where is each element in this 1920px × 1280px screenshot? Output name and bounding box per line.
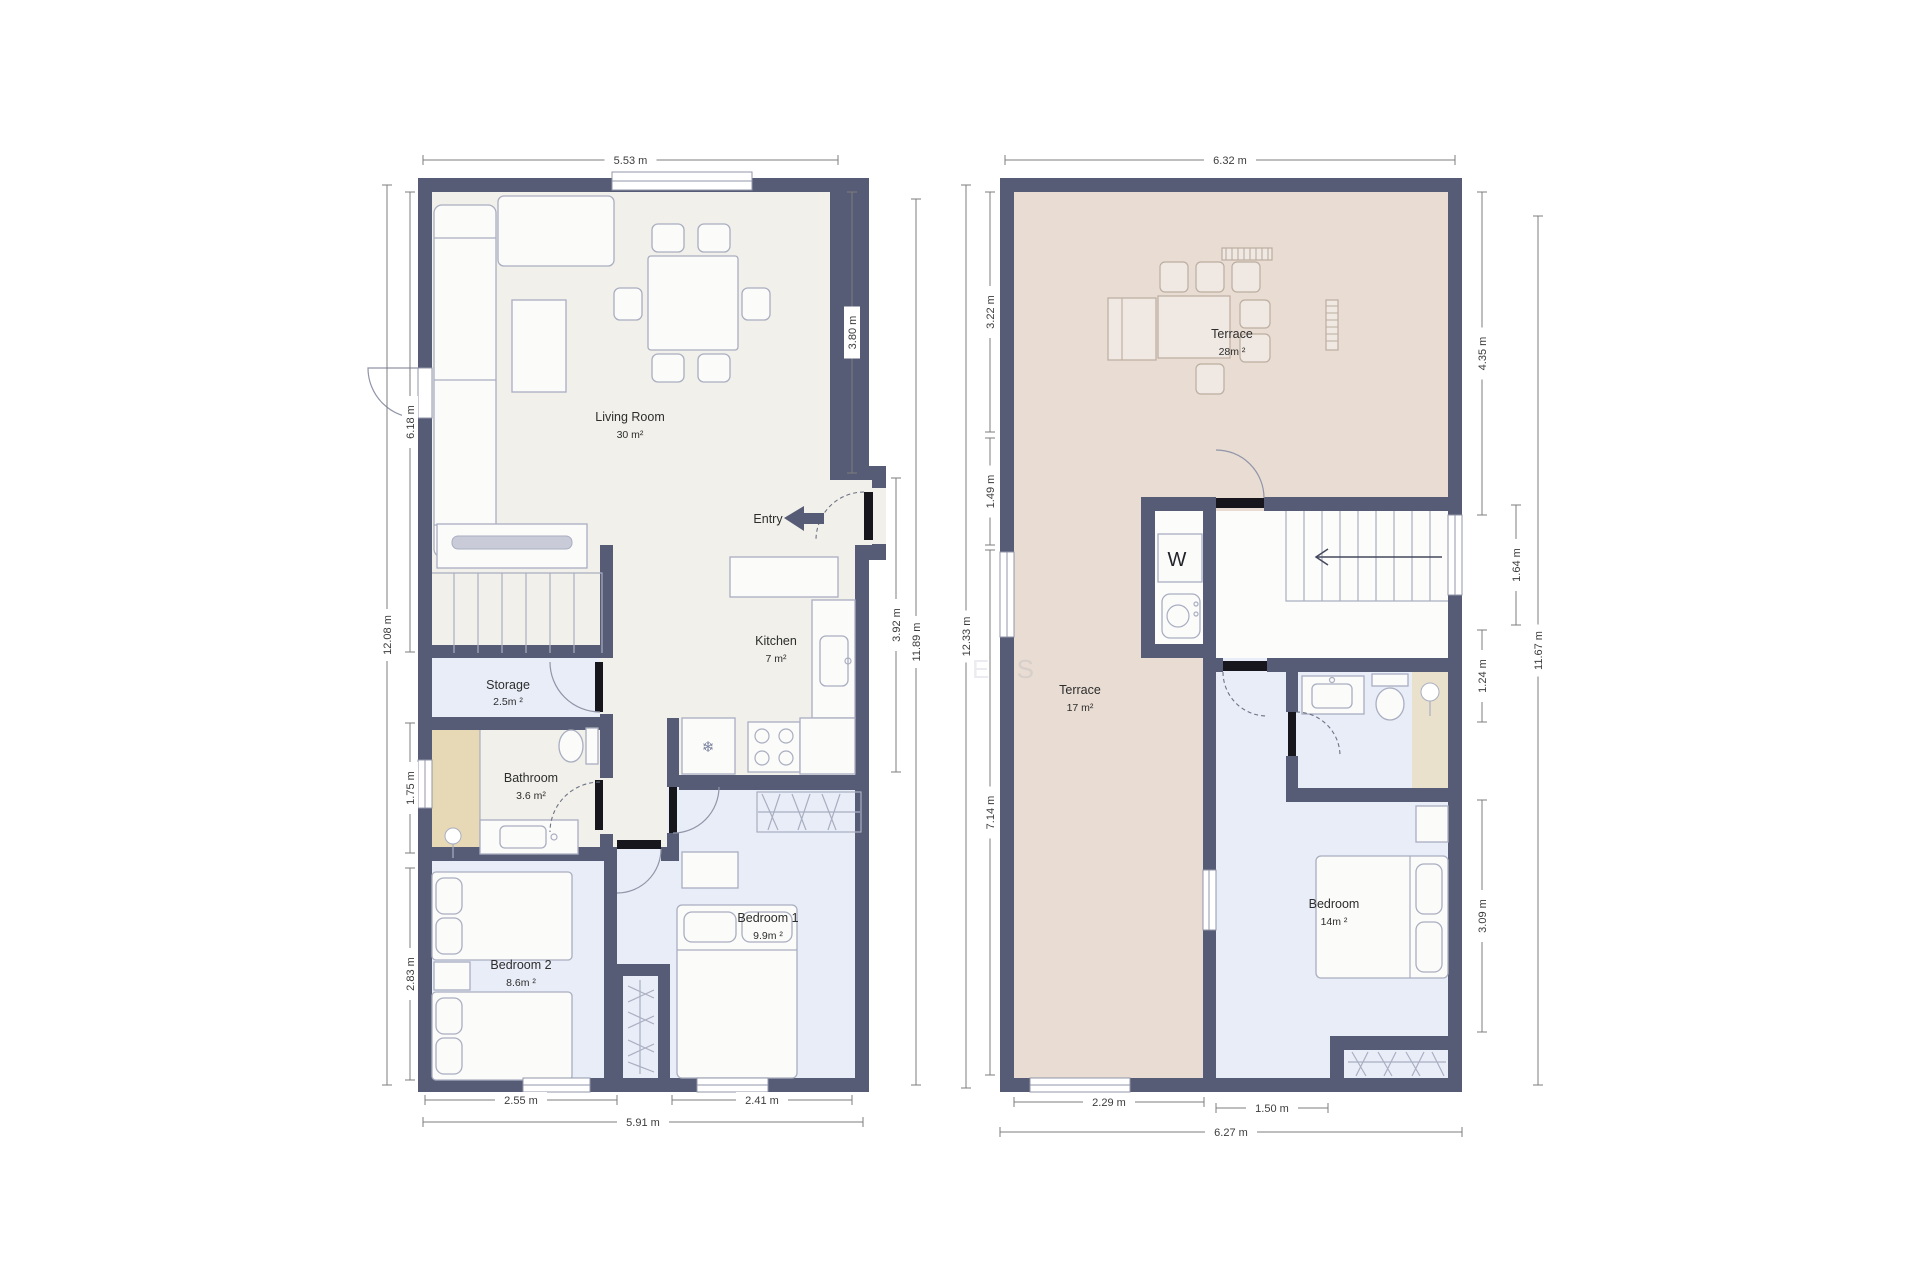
kitchen-bottom-wall	[679, 775, 869, 790]
dimension-label: 6.27 m	[1214, 1127, 1248, 1139]
pillow	[1416, 864, 1442, 914]
dimension: 3.92 m	[888, 478, 904, 772]
dimension-label: 11.89 m	[911, 623, 923, 662]
room-area-terrace-upper: 28m ²	[1219, 346, 1246, 358]
bedroom2-door-opening	[617, 847, 661, 861]
washer-closet-right-wall	[1203, 511, 1216, 658]
dining-chair	[742, 288, 770, 320]
dimension-label: 12.33 m	[961, 617, 973, 657]
living-side-door-opening	[418, 368, 432, 418]
dimension: 11.89 m	[908, 199, 924, 1085]
dimension-label: 2.83 m	[405, 957, 417, 991]
toilet-tank	[586, 728, 598, 764]
dimension: 1.75 m	[402, 723, 418, 853]
room-area-bedroom: 14m ²	[1321, 916, 1348, 928]
dimension: 2.29 m	[1014, 1094, 1204, 1110]
room-label-bedroom1: Bedroom 1	[737, 911, 798, 925]
dimension-label: 1.49 m	[985, 475, 997, 509]
lounge-chair	[1108, 298, 1156, 360]
toilet-bowl	[1376, 688, 1404, 720]
bedroom-left-wall	[1203, 658, 1216, 1078]
room-label-terrace-upper: Terrace	[1211, 327, 1253, 341]
dimension-label: 5.91 m	[626, 1117, 660, 1129]
shower-head-icon	[1421, 683, 1439, 701]
washer-closet-left-wall	[1141, 511, 1155, 658]
room-area-living: 30 m²	[617, 429, 644, 441]
room-label-kitchen: Kitchen	[755, 634, 797, 648]
planter	[1326, 300, 1338, 350]
vanity-sink	[1312, 684, 1352, 708]
dimension-label: 11.67 m	[1533, 631, 1545, 670]
pillow	[1416, 922, 1442, 972]
room-area-bathroom: 3.6 m²	[516, 790, 546, 802]
room-area-kitchen: 7 m²	[766, 653, 788, 665]
bathroom2-door-leaf	[1288, 712, 1296, 756]
dimension-label: 2.29 m	[1092, 1097, 1126, 1109]
washer-label: W	[1168, 549, 1187, 571]
dimension: 5.53 m	[423, 152, 838, 168]
dimension: 12.08 m	[379, 185, 395, 1085]
entry-door-leaf	[864, 492, 873, 540]
dresser	[682, 852, 738, 888]
closet2-top-wall	[1330, 1036, 1448, 1050]
dimension: 1.50 m	[1216, 1100, 1328, 1116]
room-label-living: Living Room	[595, 410, 664, 424]
terrace-lower-floor-b	[1014, 658, 1203, 1078]
kitchen-island	[730, 557, 838, 597]
nightstand	[434, 962, 470, 990]
water-heater	[1162, 594, 1200, 638]
terrace-door-leaf	[1216, 498, 1264, 508]
watermark-text: E S	[972, 654, 1044, 684]
hallway-floor	[613, 645, 667, 861]
dimension: 6.27 m	[1000, 1124, 1462, 1140]
dimension-label: 6.18 m	[405, 405, 417, 439]
bedroom-nook-floor	[1216, 672, 1298, 802]
nightstand	[1416, 806, 1448, 842]
room-label-bedroom: Bedroom	[1309, 897, 1360, 911]
terrace-upper-floor	[1014, 192, 1448, 497]
floorplan-svg: ❄	[0, 0, 1920, 1280]
bedroom-divider-wall	[604, 861, 617, 972]
bedroom-door-leaf	[1223, 661, 1267, 671]
dimension-label: 5.53 m	[614, 155, 648, 167]
room-label-terrace-lower: Terrace	[1059, 683, 1101, 697]
entry-label: Entry	[753, 512, 783, 526]
floorplan-canvas: ❄	[0, 0, 1920, 1280]
floor2-plan: W	[1000, 178, 1462, 1092]
pillow	[684, 912, 736, 942]
dimension: 4.35 m	[1474, 192, 1490, 515]
dimension-label: 6.32 m	[1213, 155, 1247, 167]
kitchen-right-wall	[855, 545, 869, 790]
closet2-left-wall	[1330, 1036, 1344, 1078]
outdoor-chair	[1160, 262, 1188, 292]
dimension: 5.91 m	[423, 1114, 863, 1130]
bathroom2-top-wall	[1298, 658, 1462, 672]
dimension-label: 1.50 m	[1255, 1103, 1289, 1115]
coffee-table	[512, 300, 566, 392]
kitchen-cabinet	[800, 718, 855, 774]
dining-chair	[698, 354, 730, 382]
bathroom-door-leaf	[595, 780, 603, 830]
washer-closet-top-wall	[1141, 497, 1216, 511]
dimension-label: 3.80 m	[847, 316, 859, 350]
tv	[452, 536, 572, 549]
dimension: 1.49 m	[982, 438, 998, 545]
dimension-label: 4.35 m	[1477, 337, 1489, 371]
dining-chair	[652, 224, 684, 252]
dimension: 3.09 m	[1474, 800, 1490, 1032]
outdoor-chair	[1196, 364, 1224, 394]
dining-chair	[698, 224, 730, 252]
chaise	[498, 196, 614, 266]
dimension: 2.55 m	[425, 1092, 617, 1108]
storage-door-leaf	[595, 662, 603, 712]
pillow	[436, 998, 462, 1034]
toilet-bowl	[559, 730, 583, 762]
dimension: 11.67 m	[1530, 216, 1546, 1085]
dining-chair	[614, 288, 642, 320]
dimension: 1.64 m	[1508, 505, 1524, 625]
bedroom1-door-leaf	[669, 787, 677, 833]
dimension-label: 3.09 m	[1477, 899, 1489, 933]
outdoor-chair	[1196, 262, 1224, 292]
dimension-label: 1.64 m	[1511, 548, 1523, 582]
stove	[748, 722, 800, 772]
toilet-tank	[1372, 674, 1408, 686]
outdoor-chair	[1240, 300, 1270, 328]
kitchen-sink	[820, 636, 848, 686]
dimension: 7.14 m	[982, 550, 998, 1075]
room-area-bedroom2: 8.6m ²	[506, 977, 536, 989]
dimension: 2.41 m	[672, 1092, 852, 1108]
room-label-storage: Storage	[486, 678, 530, 692]
planter	[1222, 248, 1272, 260]
room-area-bedroom1: 9.9m ²	[753, 930, 783, 942]
fridge-icon: ❄	[702, 739, 715, 756]
room-label-bedroom2: Bedroom 2	[490, 958, 551, 972]
room-label-bathroom: Bathroom	[504, 771, 558, 785]
dimension-label: 3.92 m	[891, 608, 903, 642]
vanity-sink	[500, 826, 546, 848]
dimension-label: 2.55 m	[504, 1095, 538, 1107]
dimension: 6.32 m	[1005, 152, 1455, 168]
dimension: 12.33 m	[958, 185, 974, 1088]
storage-bottom-wall	[418, 717, 613, 730]
sofa	[434, 205, 496, 557]
dining-chair	[652, 354, 684, 382]
floor1-plan: ❄	[368, 172, 886, 1092]
dimension: 3.22 m	[982, 192, 998, 432]
pillow	[436, 878, 462, 914]
entry-door-opening	[872, 488, 886, 544]
dining-table	[648, 256, 738, 350]
dimension-label: 7.14 m	[985, 796, 997, 830]
dimension-label: 3.22 m	[985, 295, 997, 329]
dimension: 1.24 m	[1474, 630, 1490, 722]
room-area-terrace-lower: 17 m²	[1067, 702, 1094, 714]
dimension-label: 2.41 m	[745, 1095, 779, 1107]
bathroom2-bottom-wall	[1286, 788, 1462, 802]
dimension: 2.83 m	[402, 868, 418, 1080]
dimension-label: 12.08 m	[382, 615, 394, 655]
closet-left-wall	[611, 964, 623, 1078]
stair-hall-floor	[1216, 511, 1448, 658]
dimension-label: 1.24 m	[1477, 659, 1489, 693]
dimension-label: 1.75 m	[405, 771, 417, 805]
room-area-storage: 2.5m ²	[493, 696, 523, 708]
closet-right-wall	[658, 964, 670, 1078]
shower-head-icon	[445, 828, 461, 844]
storage-top-wall	[418, 645, 613, 658]
bedroom2-door-leaf	[617, 840, 661, 849]
pillow	[436, 1038, 462, 1074]
dimension: 6.18 m	[402, 192, 418, 652]
washer-closet-bottom-wall	[1141, 644, 1216, 658]
outdoor-chair	[1232, 262, 1260, 292]
pillow	[436, 918, 462, 954]
